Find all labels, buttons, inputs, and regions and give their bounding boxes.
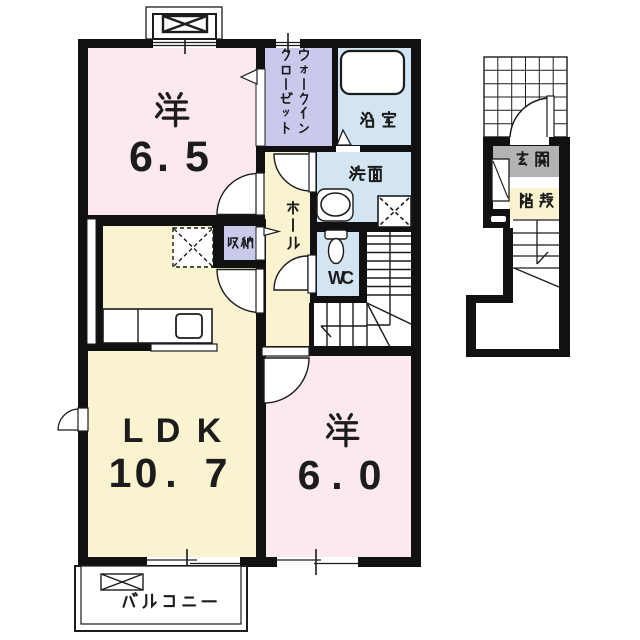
svg-text:0: 0 (135, 450, 158, 496)
svg-text:D: D (156, 412, 181, 450)
svg-text:6: 6 (298, 452, 321, 498)
svg-text:.: . (331, 452, 342, 498)
svg-text:0: 0 (359, 452, 382, 498)
svg-text:1: 1 (109, 450, 132, 496)
svg-text:C: C (341, 268, 354, 288)
svg-text:6: 6 (129, 133, 153, 181)
svg-text:.: . (157, 133, 169, 181)
svg-text:L: L (123, 412, 144, 450)
svg-text:7: 7 (205, 450, 228, 496)
svg-text:5: 5 (185, 133, 209, 181)
svg-text:K: K (197, 412, 222, 450)
svg-text:.: . (165, 450, 176, 496)
